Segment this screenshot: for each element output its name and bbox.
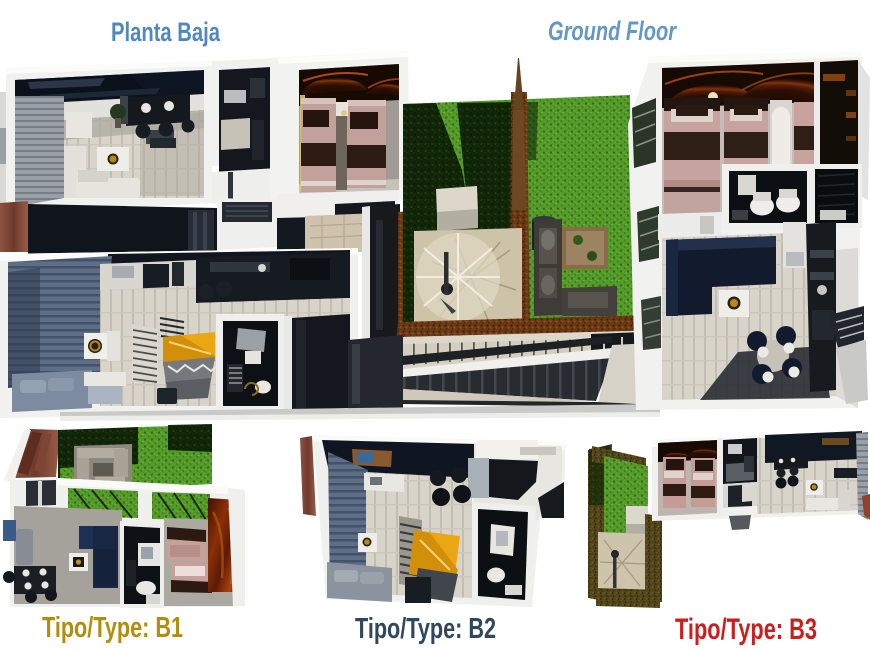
svg-text:Ground Floor: Ground Floor (548, 16, 677, 46)
svg-text:Planta Baja: Planta Baja (111, 17, 221, 47)
svg-text:Tipo/Type: B3: Tipo/Type: B3 (675, 613, 817, 646)
svg-text:Tipo/Type: B2: Tipo/Type: B2 (355, 613, 496, 645)
svg-text:Tipo/Type: B1: Tipo/Type: B1 (42, 612, 183, 644)
